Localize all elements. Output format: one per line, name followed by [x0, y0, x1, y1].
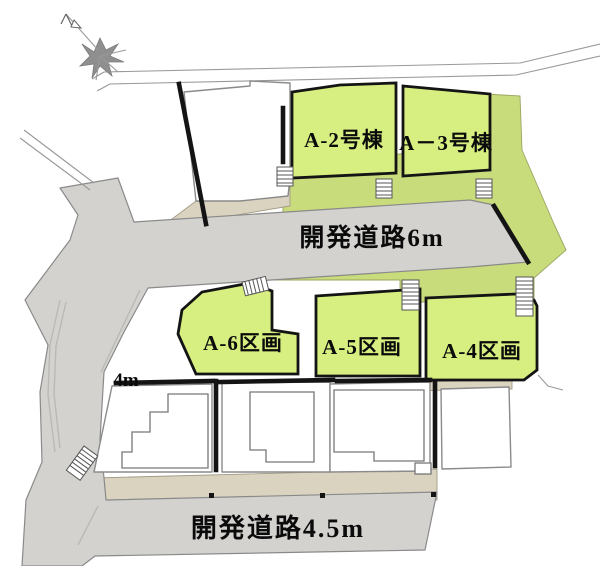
- label-building-a2: A-2号棟: [304, 128, 384, 152]
- white-lot-bottom-far-right: [441, 387, 511, 469]
- boundary-marker-3: [431, 492, 436, 497]
- north-arrow-icon: [61, 14, 126, 80]
- top-road-left-cap2: [97, 84, 110, 91]
- boundary-marker-1: [209, 493, 214, 498]
- top-road-upper-edge: [104, 44, 600, 72]
- label-parcel-a5: A-5区画: [322, 335, 402, 359]
- stairs-icon: [476, 179, 492, 198]
- path-upper-left-line1: [24, 130, 94, 183]
- building-footprint-right: [334, 390, 424, 461]
- boundary-marker-2: [320, 493, 325, 498]
- frontage-line-middle: [219, 380, 333, 382]
- stairs-icon: [376, 179, 392, 198]
- parcel-a6-polygon: [178, 283, 298, 374]
- label-building-a3: A－3号棟: [399, 131, 493, 155]
- stairs-icon: [402, 280, 419, 310]
- frontage-line-right: [337, 380, 430, 381]
- path-upper-left-line2: [20, 138, 90, 190]
- label-road-4-5m: 開発道路4.5m: [191, 513, 365, 543]
- stairs-icon: [277, 167, 293, 186]
- label-parcel-a4: A-4区画: [442, 339, 522, 363]
- building-porch-right: [415, 463, 431, 474]
- boundary-a4-corner: [538, 375, 563, 390]
- label-road-6m: 開発道路6m: [299, 223, 444, 252]
- label-road-4m: 4m: [113, 370, 139, 391]
- site-plan-map: A-2号棟 A－3号棟 開発道路6m A-6区画 A-5区画 A-4区画 4m …: [0, 0, 600, 566]
- site-plan-canvas: A-2号棟 A－3号棟 開発道路6m A-6区画 A-5区画 A-4区画 4m …: [0, 0, 600, 566]
- label-parcel-a6: A-6区画: [203, 331, 283, 355]
- stairs-icon: [516, 277, 533, 316]
